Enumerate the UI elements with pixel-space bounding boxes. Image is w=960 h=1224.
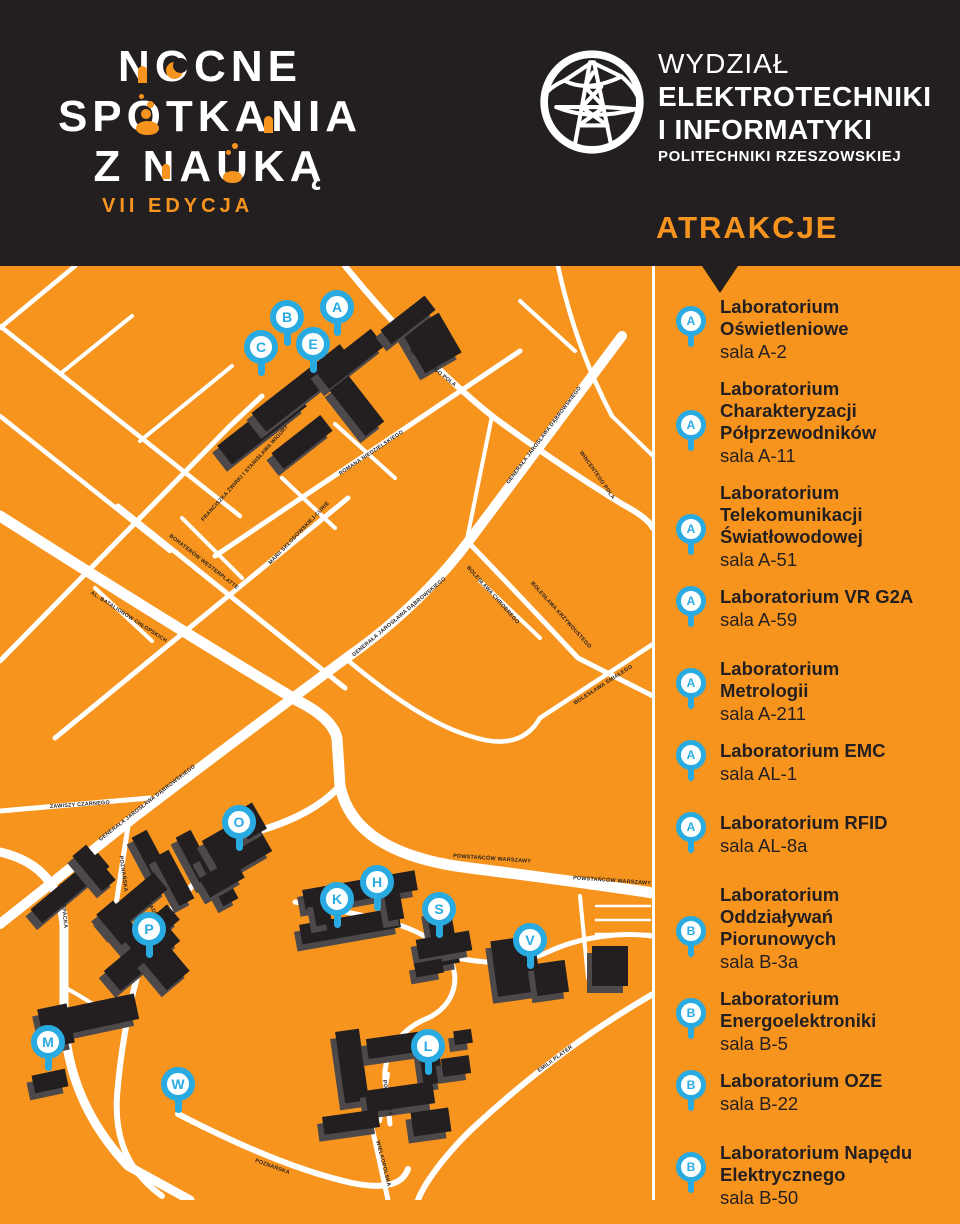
attraction-title: Laboratorium Telekomunikacji Światłowodo… (720, 482, 930, 548)
pin-letter: C (244, 330, 278, 364)
pin-letter: L (411, 1029, 445, 1063)
pin-letter: E (296, 327, 330, 361)
attraction-item: BLaboratorium Energoelektronikisala B-5 (670, 988, 956, 1055)
attraction-title: Laboratorium OZE (720, 1070, 930, 1092)
pin-letter: W (161, 1067, 195, 1101)
attraction-room: sala AL-1 (720, 762, 930, 785)
pin-letter: S (422, 892, 456, 926)
map-sidebar-divider (652, 266, 655, 1200)
faculty-line2: ELEKTROTECHNIKI (658, 80, 932, 113)
map-pin-H: H (360, 865, 394, 899)
map-pin-S: S (422, 892, 456, 926)
attraction-room: sala A-2 (720, 340, 930, 363)
attraction-room: sala AL-8a (720, 834, 930, 857)
pin-letter: B (676, 1070, 706, 1100)
attraction-pin-col: A (670, 658, 712, 725)
pin-letter: V (513, 923, 547, 957)
attraction-title: Laboratorium Metrologii (720, 658, 930, 702)
attraction-item: BLaboratorium Oddziaływań Piorunowychsal… (670, 884, 956, 973)
attraction-item: BLaboratorium Napędu Elektrycznegosala B… (670, 1142, 956, 1209)
attraction-pin-B: B (676, 1070, 706, 1112)
pin-letter: P (132, 912, 166, 946)
pin-letter: A (676, 306, 706, 336)
power-pylon-icon (536, 46, 648, 158)
attraction-item: ALaboratorium VR G2Asala A-59 (670, 586, 956, 643)
event-logo-line3: Z NAUKĄ (30, 142, 390, 192)
attraction-pin-col: B (670, 884, 712, 973)
attraction-pin-A: A (676, 410, 706, 452)
map-pin-M: M (31, 1025, 65, 1059)
attraction-pin-A: A (676, 668, 706, 710)
attraction-room: sala A-51 (720, 548, 930, 571)
pin-letter: B (676, 916, 706, 946)
faculty-line3: I INFORMATYKI (658, 113, 932, 146)
faculty-line1: WYDZIAŁ (658, 48, 932, 80)
event-map-poster: NOCNE SPOTKANIA Z NAUKĄ VII EDYCJA (0, 0, 960, 1200)
attraction-title: Laboratorium Oddziaływań Piorunowych (720, 884, 930, 950)
attraction-text: Laboratorium VR G2Asala A-59 (720, 586, 930, 643)
pointer-triangle (702, 266, 738, 293)
attractions-list: ALaboratorium Oświetleniowesala A-2ALabo… (656, 296, 956, 1224)
attraction-room: sala A-211 (720, 702, 930, 725)
attraction-text: Laboratorium Energoelektronikisala B-5 (720, 988, 930, 1055)
map-pin-K: K (320, 882, 354, 916)
faculty-name: WYDZIAŁ ELEKTROTECHNIKI I INFORMATYKI PO… (658, 48, 932, 168)
event-logo-line2: SPOTKANIA (30, 92, 390, 142)
attraction-room: sala A-59 (720, 608, 930, 631)
attraction-title: Laboratorium Oświetleniowe (720, 296, 930, 340)
attraction-item: ALaboratorium Telekomunikacji Światłowod… (670, 482, 956, 571)
pin-letter: B (676, 1152, 706, 1182)
attraction-pin-col: A (670, 586, 712, 643)
attraction-pin-A: A (676, 586, 706, 628)
attraction-pin-B: B (676, 998, 706, 1040)
pin-letter: A (676, 812, 706, 842)
pin-letter: A (676, 668, 706, 698)
attraction-room: sala B-50 (720, 1186, 930, 1209)
attraction-text: Laboratorium Oddziaływań Piorunowychsala… (720, 884, 930, 973)
pin-letter: A (676, 514, 706, 544)
attraction-text: Laboratorium RFIDsala AL-8a (720, 812, 930, 869)
attraction-title: Laboratorium VR G2A (720, 586, 930, 608)
attraction-title: Laboratorium Energoelektroniki (720, 988, 930, 1032)
faculty-line4: POLITECHNIKI RZESZOWSKIEJ (658, 146, 932, 168)
attractions-title: ATRAKCJE (656, 210, 839, 246)
map-pin-V: V (513, 923, 547, 957)
map-pin-E: E (296, 327, 330, 361)
attraction-pin-col: A (670, 740, 712, 797)
map-pin-O: O (222, 805, 256, 839)
attraction-room: sala A-11 (720, 444, 930, 467)
attraction-title: Laboratorium EMC (720, 740, 930, 762)
pin-letter: A (676, 740, 706, 770)
pin-letter: A (320, 290, 354, 324)
attraction-text: Laboratorium Telekomunikacji Światłowodo… (720, 482, 930, 571)
attraction-pin-col: A (670, 482, 712, 571)
building (453, 1029, 473, 1045)
header: NOCNE SPOTKANIA Z NAUKĄ VII EDYCJA (0, 0, 960, 266)
map-area: WINCENTEGO POLA WINCENTEGO POLA ROMANA N… (0, 266, 960, 1200)
map-pin-C: C (244, 330, 278, 364)
attraction-pin-col: A (670, 378, 712, 467)
campus-map: WINCENTEGO POLA WINCENTEGO POLA ROMANA N… (0, 266, 653, 1200)
pin-letter: A (676, 586, 706, 616)
event-logo-line1: NOCNE (30, 42, 390, 92)
attraction-room: sala B-22 (720, 1092, 930, 1115)
attraction-title: Laboratorium RFID (720, 812, 930, 834)
pin-letter: M (31, 1025, 65, 1059)
building (533, 960, 569, 996)
attraction-text: Laboratorium Metrologiisala A-211 (720, 658, 930, 725)
attraction-pin-A: A (676, 812, 706, 854)
attraction-item: ALaboratorium Metrologiisala A-211 (670, 658, 956, 725)
attraction-pin-B: B (676, 916, 706, 958)
attraction-item: ALaboratorium EMCsala AL-1 (670, 740, 956, 797)
attraction-pin-B: B (676, 1152, 706, 1194)
attraction-text: Laboratorium Charakteryzacji Półprzewodn… (720, 378, 930, 467)
attraction-item: ALaboratorium RFIDsala AL-8a (670, 812, 956, 869)
attraction-pin-col: B (670, 1142, 712, 1209)
map-pin-P: P (132, 912, 166, 946)
attraction-pin-col: B (670, 988, 712, 1055)
attraction-pin-col: A (670, 812, 712, 869)
pin-letter: B (676, 998, 706, 1028)
attraction-item: BLaboratorium OZEsala B-22 (670, 1070, 956, 1127)
attraction-item: ALaboratorium Oświetleniowesala A-2 (670, 296, 956, 363)
map-pin-L: L (411, 1029, 445, 1063)
attraction-pin-A: A (676, 514, 706, 556)
pin-letter: K (320, 882, 354, 916)
attraction-pin-col: A (670, 296, 712, 363)
attraction-pin-A: A (676, 740, 706, 782)
map-pin-W: W (161, 1067, 195, 1101)
attraction-title: Laboratorium Charakteryzacji Półprzewodn… (720, 378, 930, 444)
attraction-pin-col: B (670, 1070, 712, 1127)
attraction-text: Laboratorium EMCsala AL-1 (720, 740, 930, 797)
attraction-title: Laboratorium Napędu Elektrycznego (720, 1142, 930, 1186)
attraction-room: sala B-3a (720, 950, 930, 973)
attraction-text: Laboratorium Oświetleniowesala A-2 (720, 296, 930, 363)
attraction-pin-A: A (676, 306, 706, 348)
attraction-item: ALaboratorium Charakteryzacji Półprzewod… (670, 378, 956, 467)
attraction-room: sala B-5 (720, 1032, 930, 1055)
event-edition-label: VII EDYCJA (30, 194, 390, 218)
building (592, 946, 628, 986)
pin-letter: O (222, 805, 256, 839)
attraction-text: Laboratorium OZEsala B-22 (720, 1070, 930, 1127)
pin-letter: H (360, 865, 394, 899)
pin-letter: A (676, 410, 706, 440)
event-logo: NOCNE SPOTKANIA Z NAUKĄ VII EDYCJA (30, 42, 390, 218)
map-pin-A: A (320, 290, 354, 324)
attraction-text: Laboratorium Napędu Elektrycznegosala B-… (720, 1142, 930, 1209)
